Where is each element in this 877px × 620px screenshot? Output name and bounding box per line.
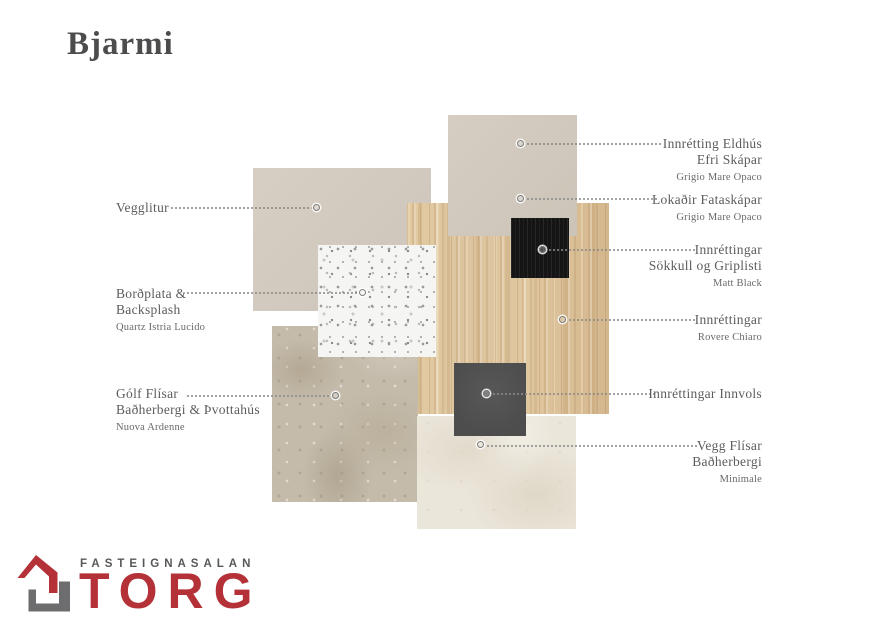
page-title: Bjarmi — [67, 26, 174, 63]
callout-subtext: Rovere Chiaro — [695, 331, 762, 344]
callout-line-bordplata — [186, 292, 359, 294]
callout-text: Innréttingar Innvols — [648, 386, 762, 402]
callout-marker-innvols — [483, 390, 490, 397]
moodboard-page: Bjarmi Vegglitur Borðplata & Backsplash … — [0, 0, 877, 620]
callout-text: Innréttingar — [649, 242, 762, 258]
callout-text: Gólf Flísar — [116, 386, 260, 402]
logo-brand-name: TORG — [79, 566, 263, 616]
callout-label-golf-flisar: Gólf Flísar Baðherbergi & Þvottahús Nuov… — [116, 386, 260, 434]
callout-marker-rovere — [559, 316, 566, 323]
callout-text: Innrétting Eldhús — [663, 136, 762, 152]
callout-line-fataskapar — [526, 198, 657, 200]
callout-text: Backsplash — [116, 302, 205, 318]
callout-marker-matt-black — [539, 246, 546, 253]
callout-marker-vegg-flisar — [477, 441, 484, 448]
callout-label-bordplata: Borðplata & Backsplash Quartz Istria Luc… — [116, 286, 205, 334]
callout-text: Borðplata & — [116, 286, 205, 302]
callout-label-innvols: Innréttingar Innvols — [648, 386, 762, 402]
callout-line-vegglitur — [170, 207, 313, 209]
callout-marker-eldhus — [517, 140, 524, 147]
torg-house-logo-icon — [15, 550, 71, 612]
callout-label-vegg-flisar: Vegg Flísar Baðherbergi Minimale — [692, 438, 762, 486]
callout-marker-bordplata — [359, 289, 366, 296]
callout-text: Vegg Flísar — [692, 438, 762, 454]
callout-line-eldhus — [526, 143, 661, 145]
callout-line-innvols — [492, 393, 656, 395]
callout-text: Baðherbergi — [692, 454, 762, 470]
callout-subtext: Minimale — [692, 473, 762, 486]
callout-label-vegglitur: Vegglitur — [116, 200, 169, 216]
callout-subtext: Grigio Mare Opaco — [663, 171, 762, 184]
callout-label-fataskapar: Lokaðir Fataskápar Grigio Mare Opaco — [652, 192, 762, 224]
callout-line-rovere — [568, 319, 695, 321]
callout-subtext: Quartz Istria Lucido — [116, 321, 205, 334]
callout-line-vegg-flisar — [486, 445, 699, 447]
callout-text: Baðherbergi & Þvottahús — [116, 402, 260, 418]
callout-marker-golf-flisar — [332, 392, 339, 399]
callout-subtext: Matt Black — [649, 277, 762, 290]
callout-text: Lokaðir Fataskápar — [652, 192, 762, 208]
callout-text: Efri Skápar — [663, 152, 762, 168]
swatch-quartz-istria-lucido — [318, 245, 436, 357]
callout-subtext: Grigio Mare Opaco — [652, 211, 762, 224]
callout-label-eldhus: Innrétting Eldhús Efri Skápar Grigio Mar… — [663, 136, 762, 184]
callout-text: Sökkull og Griplisti — [649, 258, 762, 274]
swatch-innvols — [454, 363, 526, 436]
callout-label-rovere: Innréttingar Rovere Chiaro — [695, 312, 762, 344]
callout-marker-vegglitur — [313, 204, 320, 211]
callout-text: Innréttingar — [695, 312, 762, 328]
callout-label-matt-black: Innréttingar Sökkull og Griplisti Matt B… — [649, 242, 762, 290]
callout-text: Vegglitur — [116, 200, 169, 216]
callout-marker-fataskapar — [517, 195, 524, 202]
callout-subtext: Nuova Ardenne — [116, 421, 260, 434]
